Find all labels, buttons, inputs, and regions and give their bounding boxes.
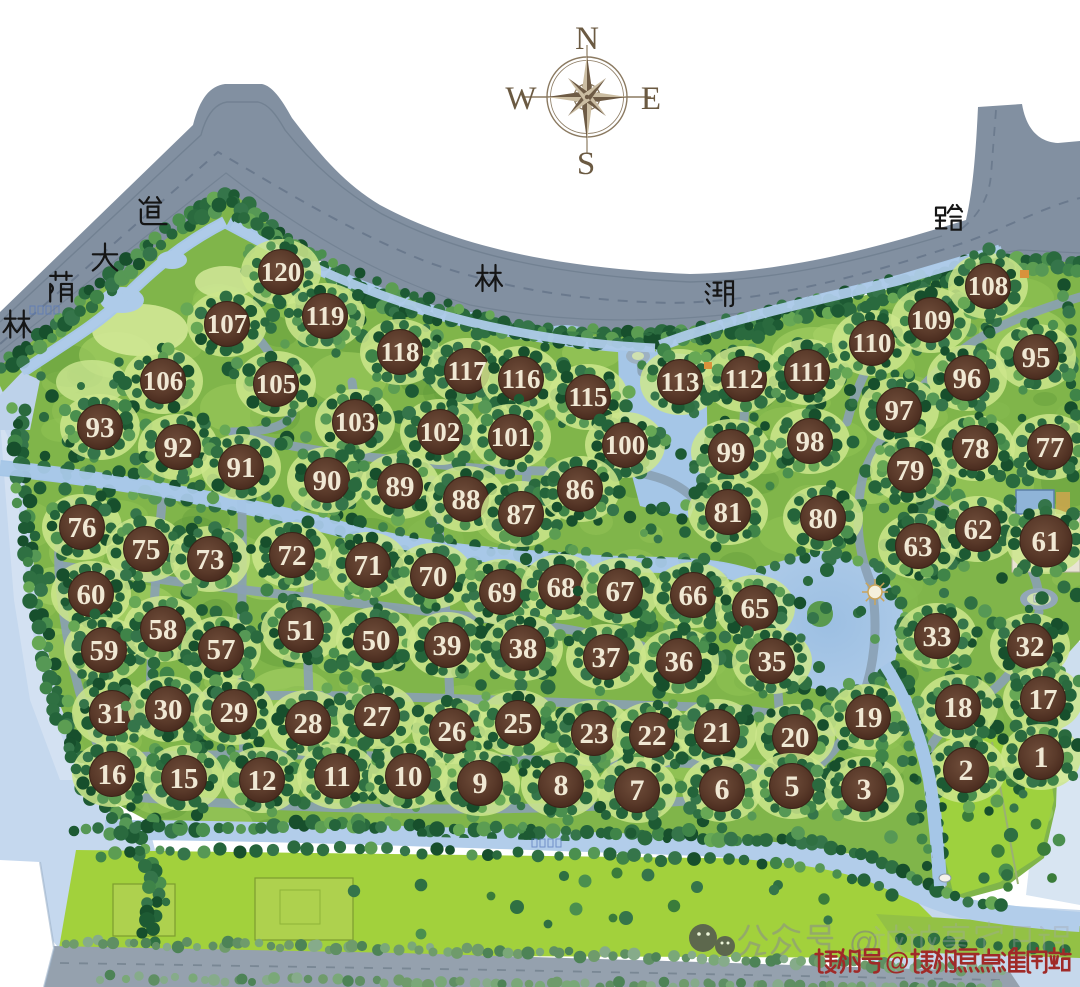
- svg-text:95: 95: [1022, 342, 1051, 374]
- svg-text:18: 18: [944, 692, 973, 724]
- svg-text:86: 86: [566, 474, 595, 506]
- svg-text:32: 32: [1016, 631, 1045, 663]
- svg-text:73: 73: [196, 544, 225, 576]
- svg-text:63: 63: [904, 531, 933, 563]
- svg-text:36: 36: [665, 646, 694, 678]
- svg-text:27: 27: [363, 701, 392, 733]
- svg-text:108: 108: [968, 271, 1009, 301]
- svg-text:10: 10: [394, 761, 423, 793]
- svg-text:33: 33: [923, 621, 952, 653]
- svg-text:60: 60: [77, 579, 106, 611]
- svg-text:68: 68: [547, 572, 576, 604]
- svg-text:107: 107: [207, 309, 248, 339]
- svg-text:9: 9: [473, 767, 488, 800]
- svg-text:59: 59: [90, 635, 119, 667]
- svg-text:@: @: [885, 948, 909, 976]
- svg-text:110: 110: [852, 328, 891, 358]
- svg-text:103: 103: [335, 407, 376, 437]
- svg-text:113: 113: [660, 367, 699, 397]
- svg-text:79: 79: [896, 455, 925, 487]
- svg-text:109: 109: [911, 305, 952, 335]
- svg-text:100: 100: [605, 430, 646, 460]
- svg-text:71: 71: [354, 550, 383, 582]
- svg-text:89: 89: [386, 471, 415, 503]
- svg-text:96: 96: [953, 363, 982, 395]
- svg-text:3: 3: [857, 773, 872, 806]
- svg-text:37: 37: [592, 642, 621, 674]
- svg-text:35: 35: [758, 646, 787, 678]
- svg-text:120: 120: [261, 257, 302, 287]
- svg-text:67: 67: [606, 576, 635, 608]
- svg-text:17: 17: [1029, 684, 1058, 716]
- svg-text:101: 101: [491, 422, 532, 452]
- svg-text:76: 76: [68, 512, 97, 544]
- svg-text:6: 6: [715, 773, 730, 806]
- svg-text:102: 102: [420, 417, 461, 447]
- svg-text:106: 106: [143, 366, 184, 396]
- svg-text:5: 5: [785, 770, 800, 803]
- svg-text:1: 1: [1034, 741, 1049, 774]
- svg-text:91: 91: [227, 452, 256, 484]
- svg-text:23: 23: [580, 718, 609, 750]
- svg-text:50: 50: [362, 625, 391, 657]
- svg-text:115: 115: [568, 382, 607, 412]
- svg-text:70: 70: [419, 561, 448, 593]
- svg-text:51: 51: [287, 615, 316, 647]
- svg-text:12: 12: [248, 765, 277, 797]
- svg-text:11: 11: [323, 761, 350, 793]
- svg-text:111: 111: [788, 357, 826, 387]
- svg-text:57: 57: [207, 634, 236, 666]
- svg-text:65: 65: [741, 593, 770, 625]
- svg-text:75: 75: [132, 534, 161, 566]
- svg-text:E: E: [641, 81, 661, 117]
- svg-text:116: 116: [501, 364, 540, 394]
- svg-text:118: 118: [380, 337, 419, 367]
- svg-text:29: 29: [220, 697, 249, 729]
- svg-text:S: S: [577, 146, 595, 182]
- svg-text:66: 66: [679, 580, 708, 612]
- svg-text:61: 61: [1032, 526, 1061, 558]
- svg-text:22: 22: [638, 720, 667, 752]
- svg-text:W: W: [505, 81, 537, 117]
- svg-text:26: 26: [438, 716, 467, 748]
- svg-text:16: 16: [98, 759, 127, 791]
- svg-text:8: 8: [554, 769, 569, 802]
- svg-text:21: 21: [703, 717, 732, 749]
- svg-text:38: 38: [509, 633, 538, 665]
- svg-text:2: 2: [959, 754, 974, 787]
- svg-text:25: 25: [504, 708, 533, 740]
- svg-text:77: 77: [1036, 432, 1065, 464]
- svg-text:88: 88: [452, 484, 481, 516]
- svg-text:117: 117: [447, 356, 486, 386]
- svg-text:15: 15: [170, 763, 199, 795]
- svg-text:81: 81: [714, 497, 743, 529]
- svg-text:72: 72: [278, 540, 307, 572]
- svg-text:62: 62: [964, 514, 993, 546]
- svg-text:58: 58: [149, 614, 178, 646]
- svg-text:78: 78: [961, 433, 990, 465]
- svg-text:97: 97: [885, 395, 914, 427]
- svg-text:20: 20: [781, 722, 810, 754]
- svg-text:7: 7: [630, 774, 645, 807]
- svg-text:105: 105: [256, 369, 297, 399]
- svg-text:80: 80: [809, 503, 838, 535]
- svg-text:98: 98: [796, 426, 825, 458]
- svg-text:93: 93: [86, 412, 115, 444]
- svg-text:90: 90: [313, 465, 342, 497]
- svg-text:69: 69: [488, 577, 517, 609]
- svg-text:112: 112: [724, 364, 763, 394]
- svg-text:28: 28: [294, 708, 323, 740]
- svg-text:92: 92: [164, 432, 193, 464]
- svg-text:N: N: [575, 21, 599, 57]
- svg-text:99: 99: [717, 437, 746, 469]
- svg-text:30: 30: [154, 694, 183, 726]
- svg-text:39: 39: [433, 630, 462, 662]
- svg-text:19: 19: [854, 702, 883, 734]
- svg-text:119: 119: [305, 301, 344, 331]
- svg-text:87: 87: [507, 499, 536, 531]
